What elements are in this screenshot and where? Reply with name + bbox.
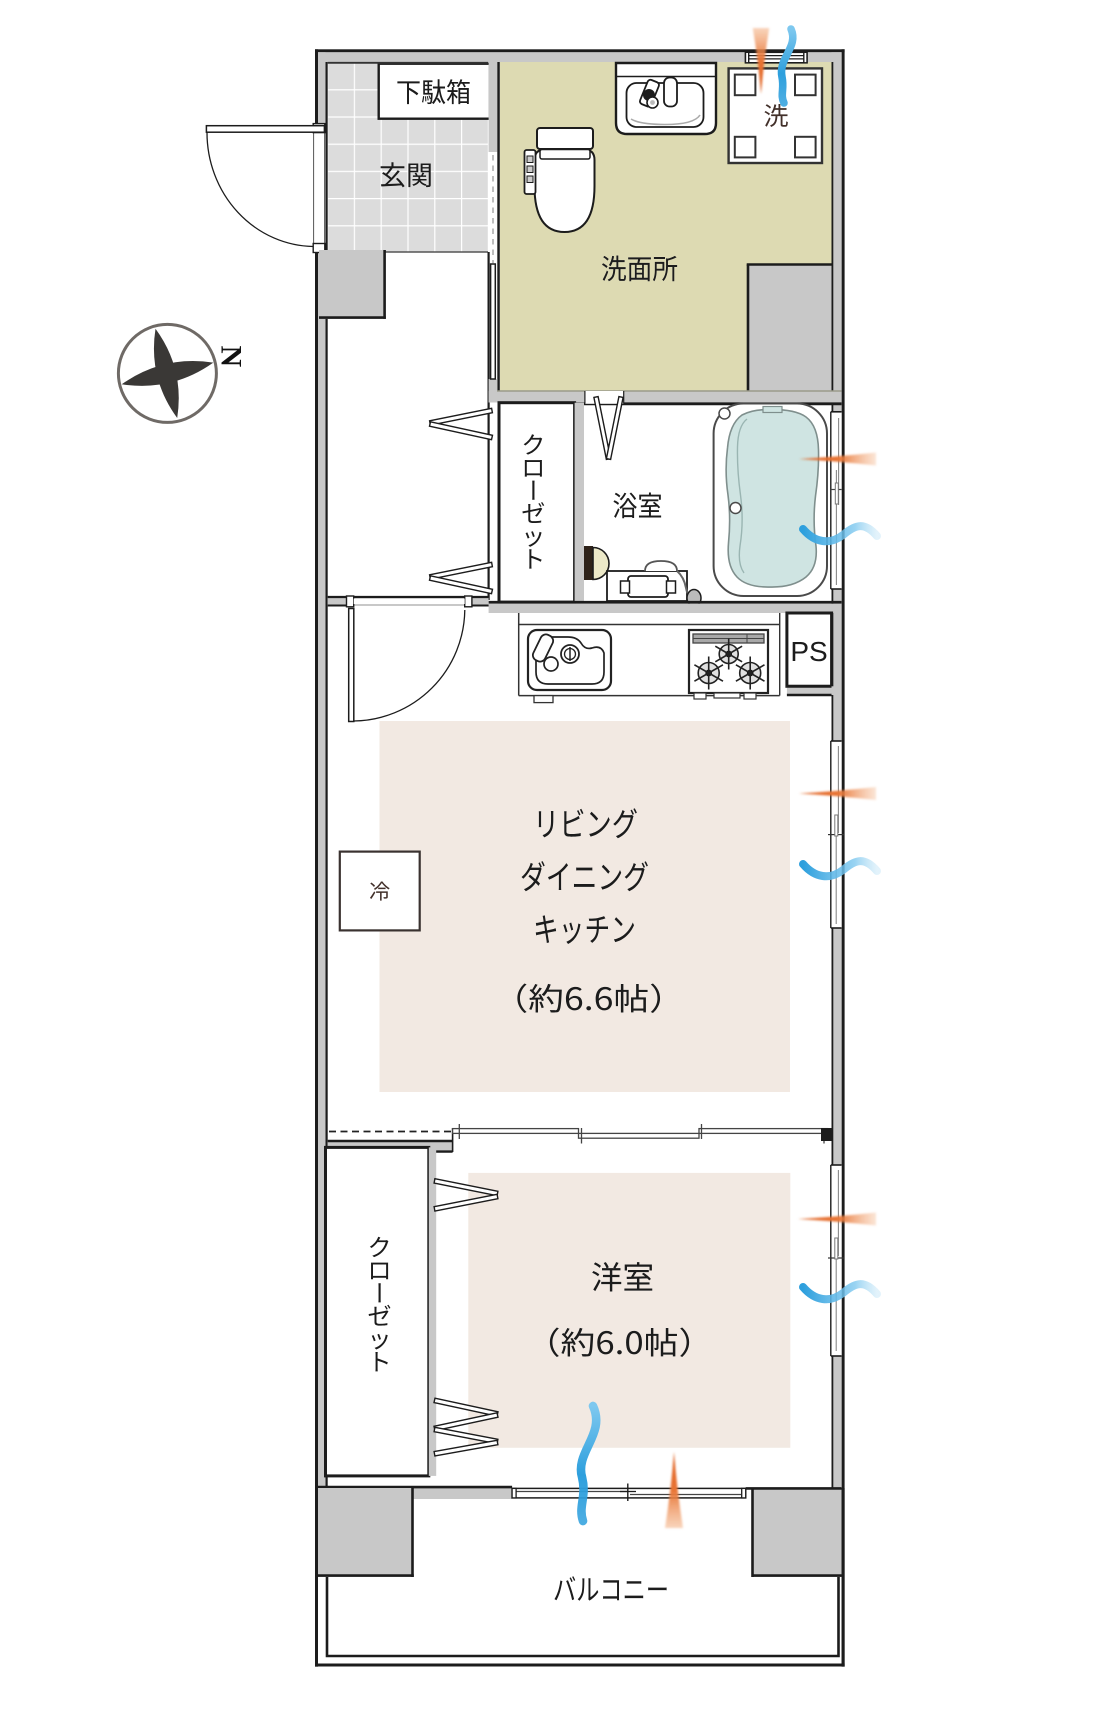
- svg-text:PS: PS: [790, 636, 827, 667]
- svg-text:N: N: [215, 346, 248, 368]
